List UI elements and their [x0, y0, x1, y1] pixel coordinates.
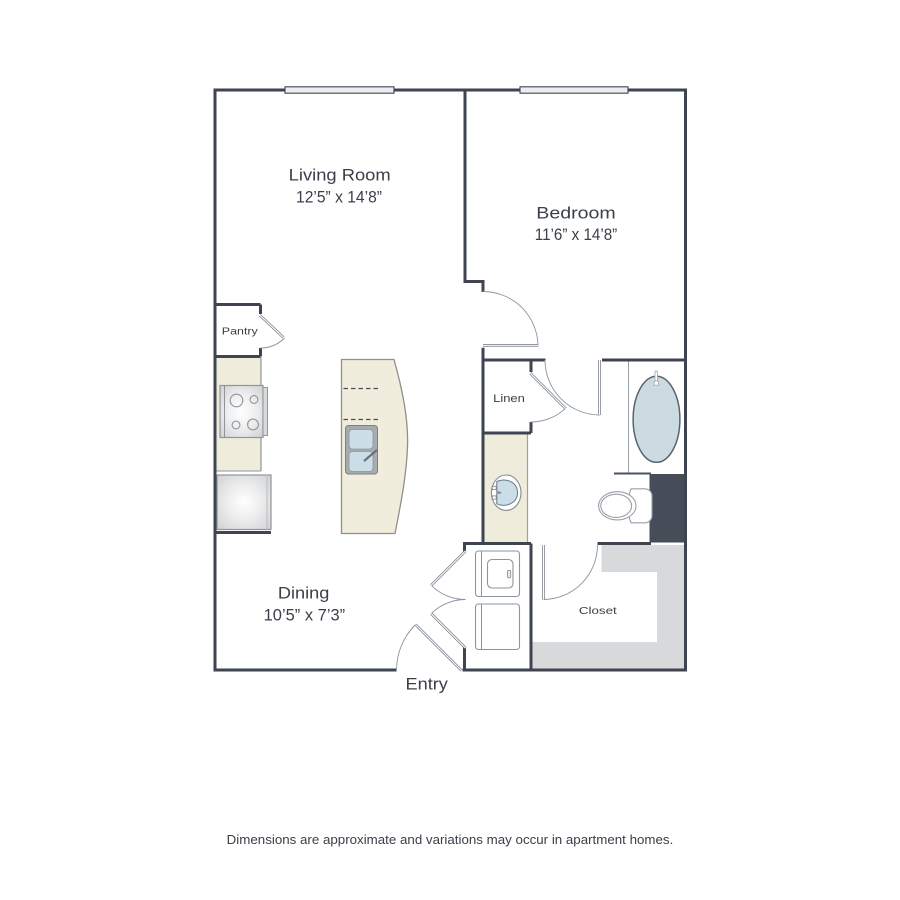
svg-text:Living Room: Living Room	[289, 166, 391, 185]
svg-text:Closet: Closet	[579, 605, 617, 617]
svg-text:Linen: Linen	[493, 393, 525, 405]
svg-text:Bedroom: Bedroom	[536, 204, 616, 223]
svg-text:11’6” x 14’8”: 11’6” x 14’8”	[535, 225, 618, 244]
svg-text:10’5” x 7’3”: 10’5” x 7’3”	[264, 606, 346, 625]
svg-text:12’5” x 14’8”: 12’5” x 14’8”	[296, 188, 382, 207]
svg-text:Pantry: Pantry	[222, 326, 259, 338]
svg-text:Dimensions are approximate and: Dimensions are approximate and variation…	[227, 832, 674, 847]
svg-text:Entry: Entry	[406, 675, 449, 694]
svg-text:Dining: Dining	[278, 584, 330, 603]
